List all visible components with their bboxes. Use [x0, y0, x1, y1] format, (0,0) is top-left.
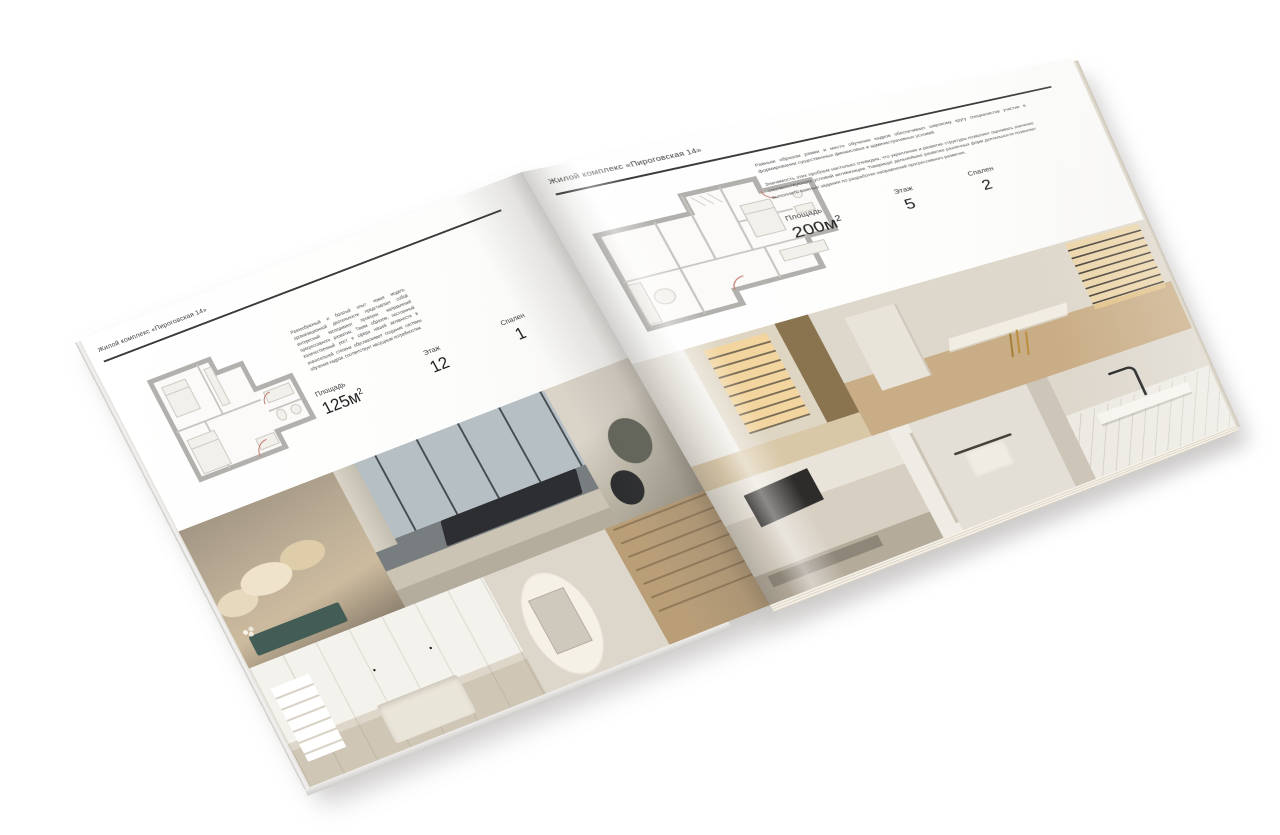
- desk: [948, 302, 1067, 350]
- dark-chaise: [440, 468, 583, 546]
- spec-floor: Этаж 5: [870, 179, 944, 221]
- spec-area: Площадь 125м2: [313, 364, 400, 419]
- white-cabinet: [845, 303, 933, 390]
- spec-floor: Этаж 12: [403, 336, 472, 384]
- gold-desk-legs: [1016, 330, 1021, 353]
- page-header: Жилой комплекс «Пироговская 14»: [97, 307, 208, 354]
- towel: [963, 438, 1016, 478]
- arch-mirror: [528, 587, 592, 654]
- range-hood: [744, 468, 825, 528]
- brochure-mockup-scene: Жилой комплекс «Пироговская 14» Разнообр…: [0, 0, 1280, 835]
- spec-bedrooms: Спален 2: [945, 159, 1024, 201]
- spec-bedrooms: Спален 1: [479, 303, 556, 354]
- built-in-shelves: [271, 673, 347, 761]
